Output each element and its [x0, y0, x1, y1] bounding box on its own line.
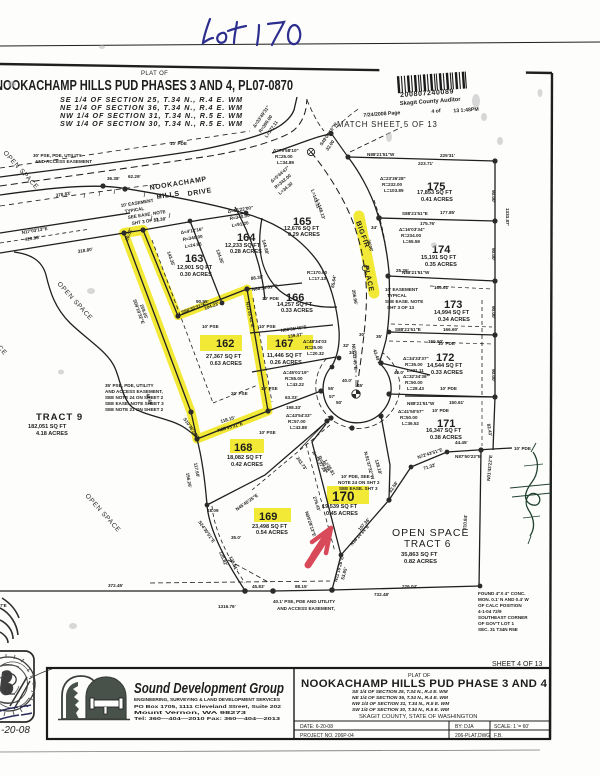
- svg-text:ENGINEERING, SURVEYING & LAND: ENGINEERING, SURVEYING & LAND DEVELOPMEN…: [134, 697, 280, 702]
- svg-text:PO Box 1705, 1111 Clevelan: PO Box 1705, 1111 Cleveland Street, Suit…: [134, 704, 282, 709]
- svg-text:4 of: 4 of: [431, 108, 441, 115]
- svg-text:NW 1/4 OF SECTION 31, T.: NW 1/4 OF SECTION 31, T.34 N., R.5 E. WM: [352, 701, 450, 707]
- svg-text:NE 1/4 OF SECTION 36, T.: NE 1/4 OF SECTION 36, T.34 N., R.4 E. WM: [352, 695, 449, 701]
- svg-text:-20-08: -20-08: [1, 725, 30, 736]
- svg-text:SE 1/4 OF SECTION 25, T.: SE 1/4 OF SECTION 25, T.34 N., R.4 E. WM: [352, 689, 449, 695]
- svg-text:SCALE: 1 '= 60': SCALE: 1 '= 60': [494, 724, 529, 730]
- svg-text:206-PLAT.DWG: 206-PLAT.DWG: [455, 733, 490, 739]
- svg-text:Mount Vernon, WA 98273: Mount Vernon, WA 98273: [134, 710, 247, 715]
- svg-text:PROJECT NO. 206P-04: PROJECT NO. 206P-04: [300, 733, 354, 739]
- svg-text:NOOKACHAMP HILLS PUD PHASE 3 A: NOOKACHAMP HILLS PUD PHASE 3 AND 4: [301, 678, 548, 690]
- svg-text:Tel: 360—404—2010 Fax:: Tel: 360—404—2010 Fax: 360—404—2013: [134, 716, 281, 721]
- svg-text:BY: DJA: BY: DJA: [455, 724, 474, 730]
- svg-text:Sound Development Group: Sound Development Group: [134, 681, 284, 697]
- svg-text:SW 1/4 OF SECTION 30, T.: SW 1/4 OF SECTION 30, T.34 N., R.5 E. WM: [352, 707, 450, 713]
- svg-text:SKAGIT COUNTY, STATE OF WA: SKAGIT COUNTY, STATE OF WASHINGTON: [359, 714, 477, 720]
- svg-text:DATE: 6-20-08: DATE: 6-20-08: [300, 724, 333, 730]
- svg-text:F.B.: F.B.: [494, 733, 503, 739]
